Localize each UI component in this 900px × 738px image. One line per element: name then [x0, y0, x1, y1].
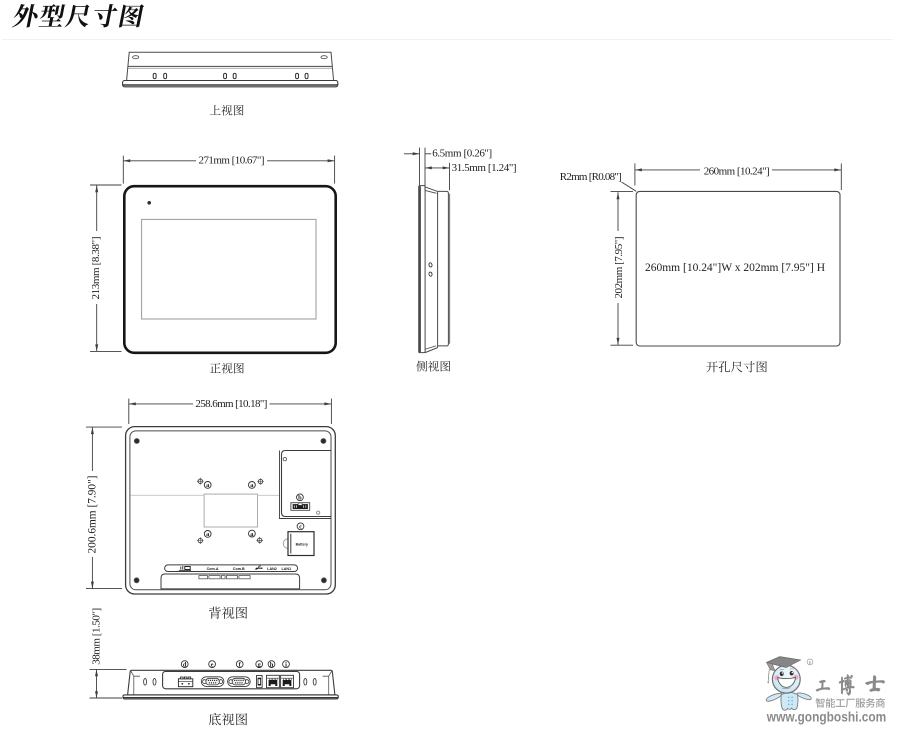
- svg-text:www.gongboshi.com: www.gongboshi.com: [766, 710, 886, 725]
- svg-text:Battery: Battery: [296, 543, 308, 547]
- svg-text:260mm [10.24"]: 260mm [10.24"]: [704, 165, 770, 177]
- svg-text:260mm [10.24"]W x 202mm [7.95": 260mm [10.24"]W x 202mm [7.95"] H: [645, 262, 825, 274]
- svg-text:R2mm [R0.08"]: R2mm [R0.08"]: [560, 171, 622, 183]
- svg-text:271mm [10.67"]: 271mm [10.67"]: [199, 154, 265, 166]
- svg-text:e: e: [211, 661, 214, 668]
- svg-text:b: b: [298, 495, 302, 502]
- svg-text:d: d: [183, 661, 187, 668]
- svg-text:200.6mm [7.90"]: 200.6mm [7.90"]: [86, 476, 98, 554]
- svg-text:6.5mm [0.26"]: 6.5mm [0.26"]: [432, 147, 492, 159]
- svg-text:Com.A: Com.A: [207, 567, 219, 571]
- svg-text:i: i: [285, 661, 287, 668]
- svg-text:h: h: [270, 661, 274, 668]
- svg-text:202mm [7.95"]: 202mm [7.95"]: [613, 237, 625, 299]
- svg-text:LAN2: LAN2: [267, 567, 277, 571]
- svg-text:258.6mm [10.18"]: 258.6mm [10.18"]: [195, 398, 267, 410]
- svg-text:LAN1: LAN1: [282, 567, 292, 571]
- svg-text:Com.B: Com.B: [233, 567, 245, 571]
- svg-text:c: c: [299, 524, 302, 531]
- svg-text:31.5mm [1.24"]: 31.5mm [1.24"]: [452, 162, 517, 174]
- svg-text:38mm [1.50"]: 38mm [1.50"]: [90, 608, 102, 665]
- svg-text:213mm [8.38"]: 213mm [8.38"]: [90, 237, 102, 300]
